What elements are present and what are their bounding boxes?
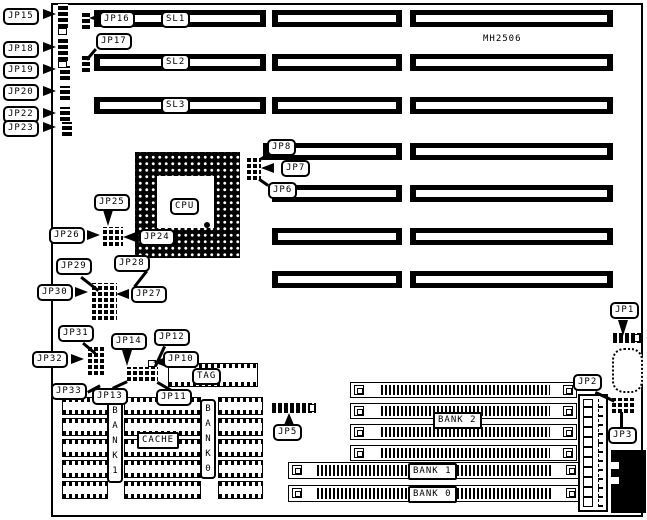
simm-clip	[354, 427, 364, 437]
pointer-jp32	[71, 354, 84, 364]
callout-jp26: JP26	[49, 227, 85, 244]
callout-jp8: JP8	[267, 139, 296, 156]
callout-jp12: JP12	[154, 329, 190, 346]
simm-socket-bank2	[350, 445, 577, 461]
slot-row4-right	[410, 143, 613, 160]
cache-chip	[218, 418, 263, 436]
bank0-label: BANK 0	[408, 486, 457, 503]
callout-jp29: JP29	[56, 258, 92, 275]
simm-socket-bank2	[350, 382, 577, 398]
motherboard-diagram: MH2506 CPU	[0, 0, 647, 520]
callout-jp28: JP28	[114, 255, 150, 272]
simm-clip	[563, 427, 573, 437]
simm-clip	[563, 448, 573, 458]
power-connector	[578, 394, 608, 512]
jumper-jp15	[58, 4, 68, 28]
callout-jp33: JP33	[51, 383, 87, 400]
callout-jp20: JP20	[3, 84, 39, 101]
cache-chip	[124, 460, 201, 478]
callout-cache: CACHE	[137, 432, 179, 449]
callout-sl1: SL1	[161, 11, 190, 28]
jumper-jp18	[58, 38, 68, 61]
slot-row6-left	[272, 228, 402, 245]
simm-clip	[292, 488, 302, 498]
cache-chip	[218, 439, 263, 457]
slot-sl3-mid	[272, 97, 402, 114]
simm-clip	[354, 385, 364, 395]
jumper-jp22	[60, 107, 70, 121]
simm-contacts	[381, 385, 550, 395]
pointer-jp30	[75, 287, 88, 297]
cache-chip	[62, 481, 108, 499]
jumper-jp23	[62, 122, 72, 136]
callout-jp6: JP6	[268, 182, 297, 199]
cache-bank0-vertical-label: BANK0	[200, 399, 216, 479]
callout-jp32: JP32	[32, 351, 68, 368]
pointer-jp3	[620, 412, 623, 428]
callout-sl3: SL3	[161, 97, 190, 114]
pointer-jp24	[123, 232, 136, 242]
simm-clip	[566, 465, 576, 475]
callout-jp16: JP16	[99, 11, 135, 28]
slot-row5-right	[410, 185, 613, 202]
jumper-jp6-jp7-jp8	[247, 158, 261, 180]
cache-chip	[218, 460, 263, 478]
slot-sl1-right	[410, 10, 613, 27]
callout-jp13: JP13	[92, 388, 128, 405]
callout-jp27: JP27	[131, 286, 167, 303]
pointer-jp22	[43, 108, 56, 118]
callout-jp11: JP11	[156, 389, 192, 406]
jumper-jp1-pin	[634, 334, 640, 342]
jumper-jp18-pin	[58, 61, 67, 68]
callout-jp18: JP18	[3, 41, 39, 58]
cache-chip	[62, 460, 108, 478]
callout-jp24: JP24	[139, 229, 175, 246]
simm-clip	[354, 406, 364, 416]
jumper-jp5-pin	[309, 404, 315, 412]
bank2-label: BANK 2	[433, 412, 482, 429]
keyboard-connector	[611, 450, 646, 513]
pointer-jp1	[618, 320, 628, 336]
cpu-pin1-dot	[204, 222, 210, 228]
callout-jp15: JP15	[3, 8, 39, 25]
jumper-jp20	[60, 86, 70, 100]
simm-clip	[563, 385, 573, 395]
cpu-label: CPU	[170, 198, 199, 215]
callout-jp1: JP1	[610, 302, 639, 319]
slot-sl2-mid	[272, 54, 402, 71]
cache-chip	[124, 481, 201, 499]
jumper-jp2-jp3	[612, 398, 634, 413]
callout-jp14: JP14	[111, 333, 147, 350]
pointer-jp14	[122, 350, 132, 366]
simm-clip	[566, 488, 576, 498]
simm-clip	[563, 406, 573, 416]
cache-chip	[218, 481, 263, 499]
simm-clip	[292, 465, 302, 475]
pointer-jp26	[87, 230, 100, 240]
callout-jp19: JP19	[3, 62, 39, 79]
cache-chip	[62, 418, 108, 436]
slot-sl2-right	[410, 54, 613, 71]
battery-outline	[612, 348, 643, 393]
callout-jp5: JP5	[273, 424, 302, 441]
pointer-jp25	[103, 210, 113, 226]
jumper-jp24-jp25-jp26	[103, 227, 123, 246]
jumper-jp10-jp14	[127, 367, 158, 381]
keyboard-connector-notch	[611, 477, 619, 484]
pointer-jp27	[116, 289, 129, 299]
pointer-jp23	[43, 122, 56, 132]
callout-jp7: JP7	[281, 160, 310, 177]
slot-sl3-right	[410, 97, 613, 114]
callout-tag: TAG	[192, 368, 221, 385]
simm-clip	[354, 448, 364, 458]
pointer-jp20	[43, 86, 56, 96]
pointer-jp18	[43, 42, 56, 52]
pointer-jp15	[43, 9, 56, 19]
slot-row7-left	[272, 271, 402, 288]
bank1-label: BANK 1	[408, 463, 457, 480]
simm-contacts	[381, 448, 550, 458]
part-number: MH2506	[483, 34, 522, 44]
callout-jp17: JP17	[96, 33, 132, 50]
pointer-jp7	[261, 163, 274, 173]
slot-row7-right	[410, 271, 613, 288]
callout-jp2: JP2	[573, 374, 602, 391]
callout-jp23: JP23	[3, 120, 39, 137]
callout-jp31: JP31	[58, 325, 94, 342]
callout-jp25: JP25	[94, 194, 130, 211]
callout-jp10: JP10	[163, 351, 199, 368]
slot-sl1-mid	[272, 10, 402, 27]
pointer-jp19	[43, 64, 56, 74]
power-connector-contacts	[598, 399, 603, 507]
callout-jp30: JP30	[37, 284, 73, 301]
cache-chip	[218, 397, 263, 415]
jumper-jp19	[60, 66, 70, 80]
callout-jp3: JP3	[608, 427, 637, 444]
jumper-jp15-pin	[58, 28, 67, 35]
slot-row6-right	[410, 228, 613, 245]
keyboard-connector-notch	[611, 462, 619, 469]
cache-bank1-vertical-label: BANK1	[107, 401, 123, 483]
cache-chip	[62, 439, 108, 457]
power-connector-pins	[583, 399, 593, 507]
callout-sl2: SL2	[161, 54, 190, 71]
